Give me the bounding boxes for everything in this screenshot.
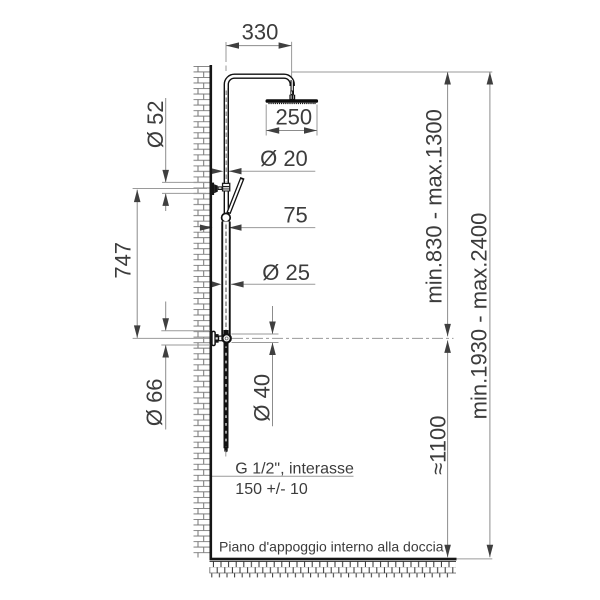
svg-text:Ø 25: Ø 25 — [262, 260, 310, 285]
svg-text:250: 250 — [275, 104, 312, 129]
svg-text:75: 75 — [283, 202, 307, 227]
svg-text:747: 747 — [110, 242, 135, 279]
svg-text:Ø 40: Ø 40 — [250, 374, 275, 422]
svg-text:min.830 - max.1300: min.830 - max.1300 — [422, 109, 447, 303]
svg-text:Ø 66: Ø 66 — [142, 378, 167, 426]
svg-text:Piano d'appoggio interno alla: Piano d'appoggio interno alla doccia — [219, 538, 444, 554]
svg-text:150 +/- 10: 150 +/- 10 — [235, 481, 308, 498]
svg-text:330: 330 — [242, 19, 279, 44]
svg-text:G 1/2", interasse: G 1/2", interasse — [235, 461, 354, 478]
svg-text:≈1100: ≈1100 — [425, 416, 450, 475]
svg-text:Ø 52: Ø 52 — [143, 100, 168, 148]
svg-text:min.1930 - max.2400: min.1930 - max.2400 — [466, 213, 491, 420]
svg-text:Ø 20: Ø 20 — [260, 146, 308, 171]
